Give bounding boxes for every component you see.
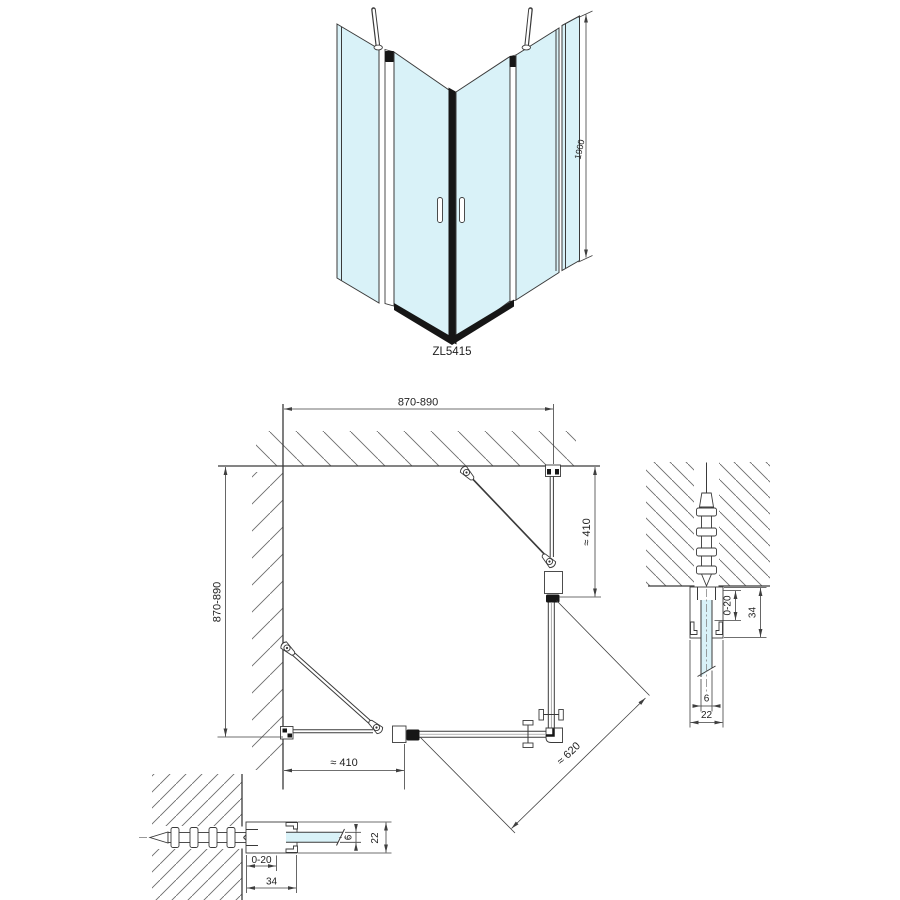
- dim-label: 6: [704, 694, 710, 705]
- corner-joint: [546, 728, 563, 743]
- wall-profile-detail-right: 0-20 34 6 22: [646, 462, 770, 728]
- dim-label: ≈ 410: [581, 518, 593, 545]
- plan-view: 870-890 870-890 ≈ 410 ≈ 410 ≈ 620: [212, 397, 650, 834]
- corner-connector-top: [545, 572, 563, 594]
- dim-label: 870-890: [212, 582, 224, 622]
- open-door-line: [466, 471, 549, 558]
- bushing-bottom: [407, 730, 420, 741]
- dim-label: 0-20: [723, 595, 734, 615]
- corner-profile: [449, 88, 457, 345]
- dim-label: ≈ 410: [330, 757, 357, 769]
- wall-support-bar-left: [374, 10, 383, 50]
- dim-label: 870-890: [398, 397, 438, 409]
- dim-label: 22: [370, 832, 381, 844]
- left-door-panel: [394, 52, 449, 340]
- hinge-icon: [540, 552, 557, 569]
- technical-drawing: 1900 ZL5415: [0, 0, 900, 900]
- right-hinge-strip: [510, 55, 516, 302]
- hinge-hardware-left: [385, 51, 394, 62]
- product-code-label: ZL5415: [432, 346, 471, 358]
- dimension-door-bottom: ≈ 410: [284, 744, 405, 790]
- dim-label: 34: [748, 607, 759, 619]
- corner-connector-bottom: [393, 726, 407, 743]
- wall-hatch-left: [252, 472, 283, 770]
- dim-label: 6: [344, 834, 355, 840]
- perspective-view: 1900 ZL5415: [337, 10, 593, 359]
- bottom-wing-door: [279, 641, 419, 743]
- bottom-profile: [420, 721, 547, 748]
- dim-label: 22: [701, 710, 713, 721]
- open-door-line: [292, 650, 376, 725]
- dim-label: 0-20: [251, 855, 271, 866]
- dimension-glass-thickness: 6: [340, 824, 361, 851]
- door-handle-left: [438, 198, 443, 223]
- wall-hatch-top: [256, 431, 576, 466]
- left-fixed-panel: [337, 24, 379, 303]
- door-handle-right: [460, 198, 465, 223]
- wall-profile-detail-bottom: 0-20 34 6 22: [139, 774, 392, 900]
- side-profile-right: [539, 603, 563, 743]
- dim-label: 34: [266, 877, 278, 888]
- top-wing-door: [459, 465, 562, 603]
- dimension-door-right: ≈ 410: [559, 467, 601, 597]
- technical-drawing-page: 1900 ZL5415: [0, 0, 900, 900]
- left-hinge-strip: [385, 50, 394, 307]
- wall-support-bar-right: [522, 10, 530, 50]
- right-fixed-panel: [516, 28, 559, 300]
- dimension-diagonal: ≈ 620: [421, 601, 650, 834]
